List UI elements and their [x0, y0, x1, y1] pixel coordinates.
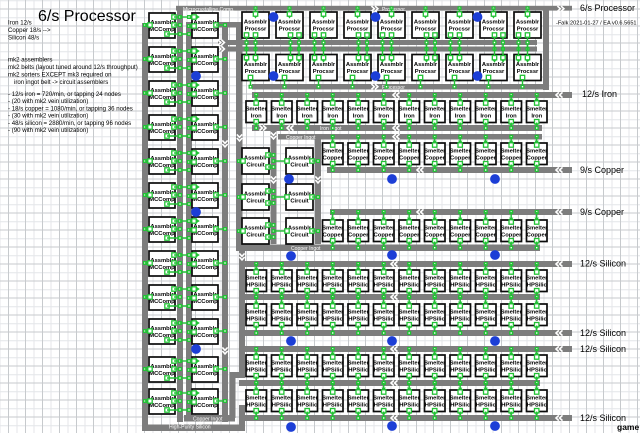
svg-text:Copper: Copper — [348, 155, 369, 161]
svg-text:Smelter: Smelter — [297, 360, 319, 366]
svg-text:Smelter: Smelter — [526, 395, 548, 401]
svg-text:mk2 assemblers: mk2 assemblers — [8, 57, 52, 64]
svg-text:Procssr: Procssr — [279, 69, 301, 75]
svg-text:Smelter: Smelter — [501, 107, 523, 113]
svg-text:Smelter: Smelter — [399, 275, 421, 281]
svg-text:Smelter: Smelter — [424, 148, 446, 154]
svg-text:Copper: Copper — [425, 232, 446, 238]
svg-text:Smelter: Smelter — [348, 107, 370, 113]
svg-text:Smelter: Smelter — [475, 275, 497, 281]
svg-text:Assmblr: Assmblr — [150, 224, 174, 230]
svg-text:Smelter: Smelter — [271, 360, 293, 366]
svg-text:MCComp: MCComp — [149, 403, 175, 409]
svg-text:Smelter: Smelter — [424, 275, 446, 281]
svg-text:Assmblr: Assmblr — [380, 62, 404, 68]
svg-text:Circuit: Circuit — [290, 163, 308, 169]
svg-text:HPSilic: HPSilic — [450, 316, 471, 322]
svg-text:Smelter: Smelter — [246, 275, 268, 281]
svg-text:Procssr: Procssr — [517, 69, 539, 75]
svg-text:HPSilic: HPSilic — [272, 367, 293, 373]
svg-text:Smelter: Smelter — [501, 309, 523, 315]
svg-text:- 48/s silicon = 2880/min, or: - 48/s silicon = 2880/min, or tapping 96… — [8, 120, 131, 127]
svg-text:HPSilic: HPSilic — [450, 367, 471, 373]
svg-text:- 12/s iron = 720/min, or tapp: - 12/s iron = 720/min, or tapping 24 nod… — [8, 91, 121, 98]
svg-text:Smelter: Smelter — [450, 309, 472, 315]
svg-text:Smelter: Smelter — [246, 309, 268, 315]
svg-text:Iron: Iron — [480, 114, 491, 120]
svg-text:Smelter: Smelter — [501, 360, 523, 366]
svg-text:Copper Ingot: Copper Ingot — [286, 135, 316, 141]
svg-text:Assmblr: Assmblr — [278, 62, 302, 68]
svg-text:Circuit: Circuit — [246, 199, 264, 205]
svg-text:Circuit: Circuit — [246, 163, 264, 169]
svg-text:iron ingot belt -> circuit ass: iron ingot belt -> circuit assemblers — [14, 79, 108, 86]
svg-text:HPSilic: HPSilic — [297, 402, 318, 408]
svg-text:Copper: Copper — [476, 155, 497, 161]
svg-text:Copper: Copper — [450, 232, 471, 238]
svg-text:Copper: Copper — [348, 232, 369, 238]
svg-text:HPSilic: HPSilic — [246, 316, 267, 322]
svg-text:Smelter: Smelter — [399, 225, 421, 231]
svg-text:Assmblr: Assmblr — [150, 326, 174, 332]
svg-text:Assmblr: Assmblr — [150, 190, 174, 196]
svg-text:HPSilic: HPSilic — [501, 367, 522, 373]
svg-text:Copper: Copper — [374, 155, 395, 161]
svg-text:Copper: Copper — [450, 155, 471, 161]
svg-text:Assmblr: Assmblr — [244, 20, 268, 26]
svg-text:HPSilic: HPSilic — [323, 367, 344, 373]
svg-text:Assmblr: Assmblr — [448, 62, 472, 68]
svg-text:Smelter: Smelter — [399, 309, 421, 315]
svg-text:Smelter: Smelter — [297, 395, 319, 401]
svg-text:HPSilic: HPSilic — [399, 402, 420, 408]
svg-text:Smelter: Smelter — [450, 275, 472, 281]
svg-text:Procssr: Procssr — [245, 27, 267, 33]
svg-text:HPSilic: HPSilic — [501, 402, 522, 408]
svg-text:Smelter: Smelter — [475, 309, 497, 315]
svg-text:HPSilic: HPSilic — [450, 282, 471, 288]
svg-text:Smelter: Smelter — [526, 107, 548, 113]
svg-text:HPSilic: HPSilic — [348, 402, 369, 408]
svg-text:Assmblr: Assmblr — [150, 20, 174, 26]
svg-text:HPSilic: HPSilic — [374, 367, 395, 373]
svg-text:Assmblr: Assmblr — [150, 54, 174, 60]
svg-text:MCComp: MCComp — [149, 27, 175, 33]
svg-text:HPSilic: HPSilic — [246, 367, 267, 373]
svg-text:Iron: Iron — [404, 114, 415, 120]
svg-text:HPSilic: HPSilic — [527, 316, 548, 322]
svg-text:Procssr: Procssr — [381, 69, 403, 75]
svg-text:Copper Ingot: Copper Ingot — [291, 246, 321, 252]
svg-text:mk2 belts (layout tuned around: mk2 belts (layout tuned around 12/s thro… — [8, 64, 138, 71]
svg-text:Assmblr: Assmblr — [150, 258, 174, 264]
svg-text:Copper: Copper — [399, 232, 420, 238]
svg-text:HPSilic: HPSilic — [527, 402, 548, 408]
svg-text:Smelter: Smelter — [373, 309, 395, 315]
svg-text:Smelter: Smelter — [424, 225, 446, 231]
svg-text:Silicon 48/s: Silicon 48/s — [8, 35, 39, 42]
svg-text:Assmblr: Assmblr — [244, 192, 268, 198]
svg-text:12/s Silicon: 12/s Silicon — [580, 328, 626, 338]
svg-text:Copper Ingot: Copper Ingot — [193, 416, 223, 422]
svg-text:Smelter: Smelter — [271, 275, 293, 281]
svg-text:Procssr: Procssr — [313, 27, 335, 33]
svg-text:mk2 sorters EXCEPT mk3 require: mk2 sorters EXCEPT mk3 required on — [8, 72, 112, 79]
svg-text:Smelter: Smelter — [246, 107, 268, 113]
svg-text:Copper: Copper — [527, 232, 548, 238]
svg-text:HPSilic: HPSilic — [425, 282, 446, 288]
svg-text:MCComp: MCComp — [149, 371, 175, 377]
svg-text:Iron: Iron — [429, 114, 440, 120]
svg-text:Smelter: Smelter — [373, 395, 395, 401]
svg-text:Smelter: Smelter — [297, 309, 319, 315]
svg-text:Copper: Copper — [527, 155, 548, 161]
svg-text:Copper: Copper — [323, 232, 344, 238]
svg-text:Smelter: Smelter — [475, 225, 497, 231]
svg-text:Copper: Copper — [374, 232, 395, 238]
svg-text:Circuit: Circuit — [246, 233, 264, 239]
svg-text:Procssr: Procssr — [347, 27, 369, 33]
svg-text:Procssr: Procssr — [347, 69, 369, 75]
svg-text:Smelter: Smelter — [348, 148, 370, 154]
svg-text:HPSilic: HPSilic — [399, 367, 420, 373]
svg-text:- (20 with mk2 vein utilizatio: - (20 with mk2 vein utilization) — [8, 98, 88, 105]
svg-text:Smelter: Smelter — [526, 275, 548, 281]
svg-text:Smelter: Smelter — [322, 148, 344, 154]
svg-text:Iron: Iron — [353, 114, 364, 120]
svg-text:MCComp: MCComp — [149, 129, 175, 135]
svg-text:Smelter: Smelter — [450, 225, 472, 231]
svg-text:Procssr: Procssr — [449, 27, 471, 33]
svg-text:Smelter: Smelter — [501, 275, 523, 281]
svg-text:6/s Processor: 6/s Processor — [38, 8, 136, 25]
svg-text:12/s Silicon: 12/s Silicon — [580, 344, 626, 354]
svg-text:Assmblr: Assmblr — [516, 62, 540, 68]
svg-text:HPSilic: HPSilic — [425, 316, 446, 322]
svg-text:High-Purity Silicon: High-Purity Silicon — [169, 425, 211, 431]
svg-text:- 18/s copper = 1080/min, or t: - 18/s copper = 1080/min, or tapping 36 … — [8, 105, 133, 112]
svg-text:Iron 12/s: Iron 12/s — [8, 20, 32, 27]
svg-text:game: game — [617, 422, 639, 432]
svg-text:HPSilic: HPSilic — [527, 282, 548, 288]
svg-text:Smelter: Smelter — [424, 395, 446, 401]
svg-text:Smelter: Smelter — [501, 395, 523, 401]
svg-text:Smelter: Smelter — [322, 225, 344, 231]
svg-text:HPSilic: HPSilic — [323, 282, 344, 288]
svg-text:Iron: Iron — [531, 114, 542, 120]
svg-text:HPSilic: HPSilic — [348, 367, 369, 373]
svg-text:Smelter: Smelter — [348, 360, 370, 366]
svg-text:Smelter: Smelter — [526, 309, 548, 315]
svg-text:Smelter: Smelter — [475, 148, 497, 154]
svg-text:Smelter: Smelter — [246, 360, 268, 366]
svg-text:Copper: Copper — [476, 232, 497, 238]
svg-text:HPSilic: HPSilic — [501, 282, 522, 288]
svg-text:Assmblr: Assmblr — [414, 62, 438, 68]
svg-text:- (30 with mk2 vein utilizatio: - (30 with mk2 vein utilization) — [8, 113, 88, 120]
svg-text:HPSilic: HPSilic — [399, 316, 420, 322]
svg-text:MCComp: MCComp — [149, 95, 175, 101]
svg-text:Smelter: Smelter — [399, 148, 421, 154]
svg-text:Smelter: Smelter — [399, 360, 421, 366]
svg-text:Procssr: Procssr — [313, 69, 335, 75]
svg-text:HPSilic: HPSilic — [272, 282, 293, 288]
svg-text:Assmblr: Assmblr — [150, 292, 174, 298]
svg-text:Assmblr: Assmblr — [244, 226, 268, 232]
svg-text:Iron: Iron — [378, 114, 389, 120]
svg-text:Assmblr: Assmblr — [346, 62, 370, 68]
svg-text:MCComp: MCComp — [149, 61, 175, 67]
svg-text:Smelter: Smelter — [348, 309, 370, 315]
svg-text:HPSilic: HPSilic — [323, 402, 344, 408]
svg-text:Circuit: Circuit — [290, 199, 308, 205]
svg-text:HPSilic: HPSilic — [501, 316, 522, 322]
svg-text:Smelter: Smelter — [373, 148, 395, 154]
svg-text:Iron: Iron — [251, 114, 262, 120]
svg-text:Smelter: Smelter — [526, 148, 548, 154]
svg-text:9/s Copper: 9/s Copper — [580, 165, 624, 175]
svg-text:Copper: Copper — [323, 155, 344, 161]
svg-text:HPSilic: HPSilic — [527, 367, 548, 373]
svg-text:HPSilic: HPSilic — [374, 316, 395, 322]
svg-text:Smelter: Smelter — [450, 360, 472, 366]
svg-text:HPSilic: HPSilic — [374, 282, 395, 288]
svg-text:Procssr: Procssr — [381, 27, 403, 33]
svg-text:Smelter: Smelter — [348, 395, 370, 401]
svg-text:Copper: Copper — [399, 155, 420, 161]
svg-text:Assmblr: Assmblr — [150, 156, 174, 162]
svg-text:Procssr: Procssr — [449, 69, 471, 75]
svg-text:Smelter: Smelter — [373, 225, 395, 231]
svg-text:MCComp: MCComp — [149, 231, 175, 237]
svg-text:HPSilic: HPSilic — [348, 282, 369, 288]
svg-text:Procssr: Procssr — [517, 27, 539, 33]
svg-text:MCComp: MCComp — [149, 197, 175, 203]
svg-text:Smelter: Smelter — [501, 148, 523, 154]
svg-text:9/s Copper: 9/s Copper — [580, 207, 624, 217]
svg-text:Assmblr: Assmblr — [312, 62, 336, 68]
svg-text:HPSilic: HPSilic — [246, 282, 267, 288]
svg-text:Assmblr: Assmblr — [448, 20, 472, 26]
svg-text:HPSilic: HPSilic — [425, 402, 446, 408]
svg-text:HPSilic: HPSilic — [297, 367, 318, 373]
svg-text:HPSilic: HPSilic — [348, 316, 369, 322]
svg-text:HPSilic: HPSilic — [272, 316, 293, 322]
svg-text:12/s Silicon: 12/s Silicon — [580, 259, 626, 269]
svg-text:Smelter: Smelter — [450, 395, 472, 401]
svg-text:Assmblr: Assmblr — [312, 20, 336, 26]
svg-text:Smelter: Smelter — [424, 360, 446, 366]
svg-text:Procssr: Procssr — [483, 69, 505, 75]
svg-text:Smelter: Smelter — [348, 275, 370, 281]
svg-text:Smelter: Smelter — [373, 360, 395, 366]
svg-text:Assmblr: Assmblr — [482, 20, 506, 26]
svg-text:HPSilic: HPSilic — [476, 367, 497, 373]
svg-text:HPSilic: HPSilic — [272, 402, 293, 408]
svg-text:Procssr: Procssr — [415, 69, 437, 75]
svg-text:Smelter: Smelter — [373, 107, 395, 113]
svg-text:Iron: Iron — [302, 114, 313, 120]
svg-text:Copper: Copper — [501, 155, 522, 161]
svg-text:Smelter: Smelter — [424, 309, 446, 315]
svg-text:- (90 with mk2 vein utilizatio: - (90 with mk2 vein utilization) — [8, 127, 88, 134]
svg-text:Smelter: Smelter — [271, 309, 293, 315]
svg-text:Smelter: Smelter — [297, 275, 319, 281]
svg-text:Assmblr: Assmblr — [516, 20, 540, 26]
svg-text:Smelter: Smelter — [373, 275, 395, 281]
svg-text:HPSilic: HPSilic — [374, 402, 395, 408]
svg-text:Smelter: Smelter — [322, 360, 344, 366]
svg-text:Iron: Iron — [327, 114, 338, 120]
svg-text:HPSilic: HPSilic — [297, 316, 318, 322]
svg-text:Procssr: Procssr — [483, 27, 505, 33]
svg-text:Smelter: Smelter — [526, 225, 548, 231]
svg-text:Copper: Copper — [425, 155, 446, 161]
svg-text:Assmblr: Assmblr — [288, 226, 312, 232]
svg-text:Procssr: Procssr — [279, 27, 301, 33]
svg-text:Assmblr: Assmblr — [414, 20, 438, 26]
svg-text:MCComp: MCComp — [149, 265, 175, 271]
svg-text:Assmblr: Assmblr — [380, 20, 404, 26]
svg-text:MCComp: MCComp — [149, 299, 175, 305]
svg-text:6/s Processor: 6/s Processor — [580, 3, 635, 13]
svg-text:HPSilic: HPSilic — [297, 282, 318, 288]
svg-text:Circuit: Circuit — [290, 233, 308, 239]
svg-text:Smelter: Smelter — [526, 360, 548, 366]
svg-text:HPSilic: HPSilic — [476, 316, 497, 322]
svg-text:Assmblr: Assmblr — [244, 62, 268, 68]
svg-text:MCComp: MCComp — [149, 333, 175, 339]
svg-text:Smelter: Smelter — [501, 225, 523, 231]
svg-text:-Falk 2021-01-27 / EA v0.6.565: -Falk 2021-01-27 / EA v0.6.5651 — [556, 21, 637, 27]
svg-text:Assmblr: Assmblr — [150, 88, 174, 94]
svg-text:HPSilic: HPSilic — [476, 282, 497, 288]
svg-text:12/s Iron: 12/s Iron — [582, 89, 617, 99]
svg-text:Copper: Copper — [501, 232, 522, 238]
svg-text:Smelter: Smelter — [297, 107, 319, 113]
svg-text:Assmblr: Assmblr — [150, 364, 174, 370]
svg-text:Smelter: Smelter — [424, 107, 446, 113]
svg-text:HPSilic: HPSilic — [476, 402, 497, 408]
svg-text:Assmblr: Assmblr — [244, 156, 268, 162]
svg-text:HPSilic: HPSilic — [425, 367, 446, 373]
svg-text:Procssr: Procssr — [245, 69, 267, 75]
svg-text:Smelter: Smelter — [322, 309, 344, 315]
svg-text:Iron: Iron — [276, 114, 287, 120]
svg-text:Smelter: Smelter — [271, 395, 293, 401]
svg-text:Smelter: Smelter — [271, 107, 293, 113]
svg-text:HPSilic: HPSilic — [323, 316, 344, 322]
svg-text:Smelter: Smelter — [246, 395, 268, 401]
svg-text:Iron: Iron — [506, 114, 517, 120]
svg-text:HPSilic: HPSilic — [399, 282, 420, 288]
svg-text:Smelter: Smelter — [475, 107, 497, 113]
svg-text:Assmblr: Assmblr — [150, 122, 174, 128]
svg-text:Smelter: Smelter — [322, 395, 344, 401]
svg-text:Smelter: Smelter — [322, 275, 344, 281]
svg-text:Smelter: Smelter — [475, 360, 497, 366]
svg-text:Smelter: Smelter — [475, 395, 497, 401]
svg-text:Smelter: Smelter — [348, 225, 370, 231]
svg-text:Procssr: Procssr — [415, 27, 437, 33]
svg-text:Smelter: Smelter — [450, 107, 472, 113]
svg-text:Assmblr: Assmblr — [288, 192, 312, 198]
svg-text:Copper 18/s -->: Copper 18/s --> — [8, 27, 51, 34]
svg-text:Assmblr: Assmblr — [278, 20, 302, 26]
svg-text:MCComp: MCComp — [149, 163, 175, 169]
svg-text:Smelter: Smelter — [450, 148, 472, 154]
svg-text:Iron: Iron — [455, 114, 466, 120]
svg-text:Smelter: Smelter — [399, 395, 421, 401]
svg-text:Assmblr: Assmblr — [150, 396, 174, 402]
svg-text:HPSilic: HPSilic — [450, 402, 471, 408]
svg-text:Assmblr: Assmblr — [482, 62, 506, 68]
svg-text:Microcrystalline Comp.: Microcrystalline Comp. — [183, 7, 235, 13]
svg-text:Smelter: Smelter — [322, 107, 344, 113]
svg-text:Assmblr: Assmblr — [346, 20, 370, 26]
svg-text:Smelter: Smelter — [399, 107, 421, 113]
svg-text:Assmblr: Assmblr — [288, 156, 312, 162]
svg-text:HPSilic: HPSilic — [246, 402, 267, 408]
